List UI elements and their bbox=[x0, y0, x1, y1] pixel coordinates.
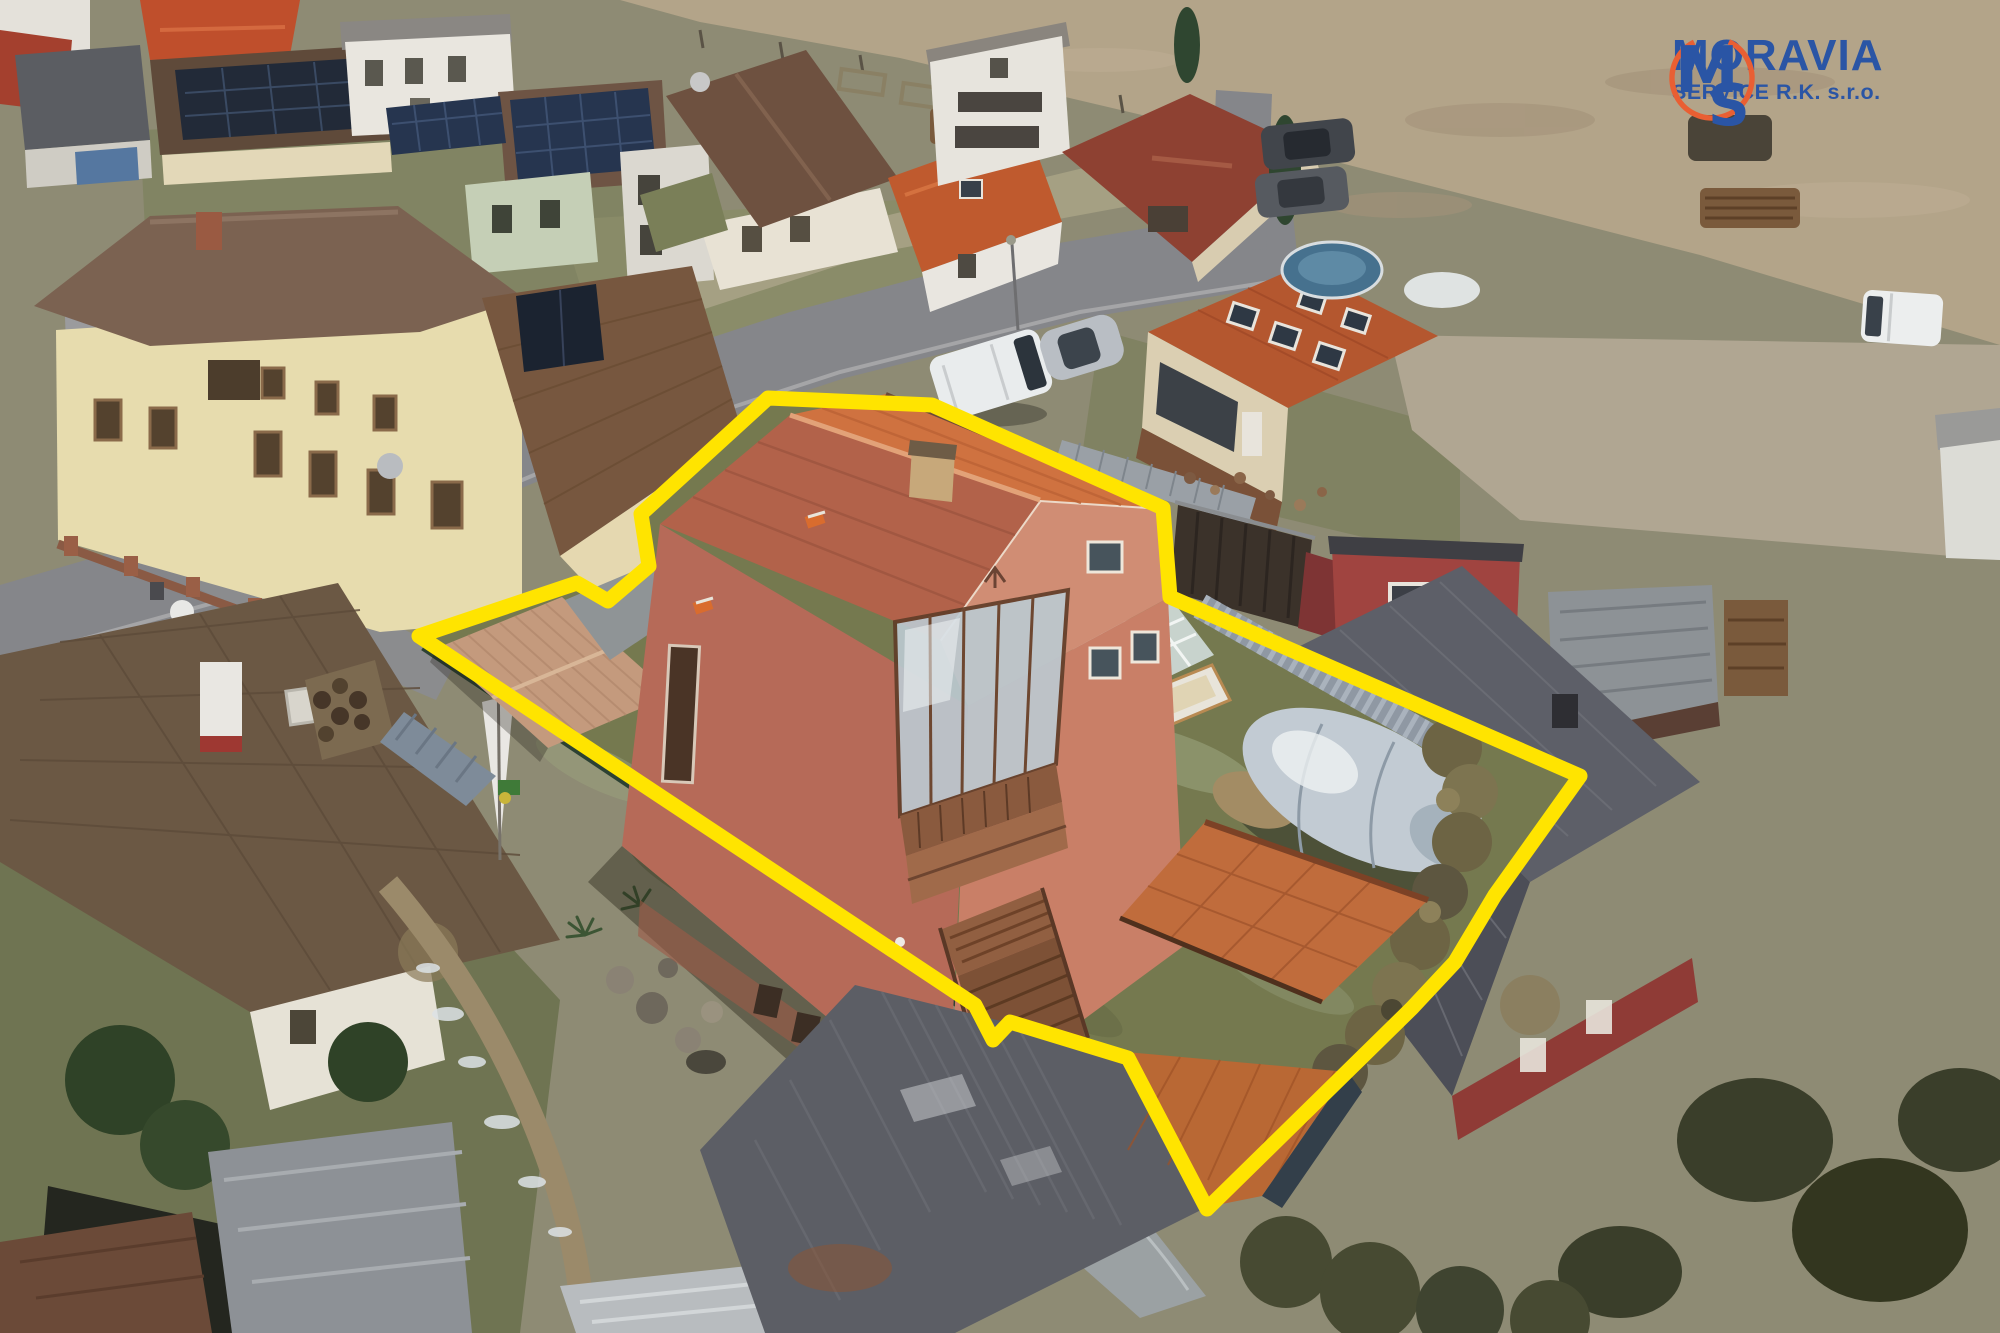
gray-garage bbox=[15, 45, 152, 188]
door bbox=[1242, 412, 1262, 456]
satellite-dish bbox=[377, 453, 403, 479]
round-pool-water bbox=[1298, 251, 1366, 285]
white-van-topright bbox=[1860, 289, 1943, 346]
snow-pile bbox=[1404, 272, 1480, 308]
lamp-head bbox=[1006, 235, 1016, 245]
window bbox=[1586, 1000, 1612, 1034]
ms-monogram-icon: M S bbox=[1662, 26, 1762, 126]
aerial-scene bbox=[0, 0, 2000, 1333]
chimney bbox=[196, 212, 222, 250]
chimney-white bbox=[200, 662, 242, 752]
stair-window bbox=[662, 645, 699, 782]
cypress bbox=[1174, 7, 1200, 83]
agency-logo: M S MORAVIA SERVICE R.K. s.r.o. bbox=[1662, 26, 1884, 105]
window bbox=[1520, 1038, 1546, 1072]
window bbox=[290, 1010, 316, 1044]
gable-window bbox=[1088, 542, 1122, 572]
chimney bbox=[908, 440, 957, 502]
balcony bbox=[208, 360, 260, 400]
monogram-s: S bbox=[1708, 71, 1750, 126]
orange-roof-house bbox=[140, 0, 300, 60]
aerial-photo: M S MORAVIA SERVICE R.K. s.r.o. bbox=[0, 0, 2000, 1333]
chimney bbox=[1552, 694, 1578, 728]
